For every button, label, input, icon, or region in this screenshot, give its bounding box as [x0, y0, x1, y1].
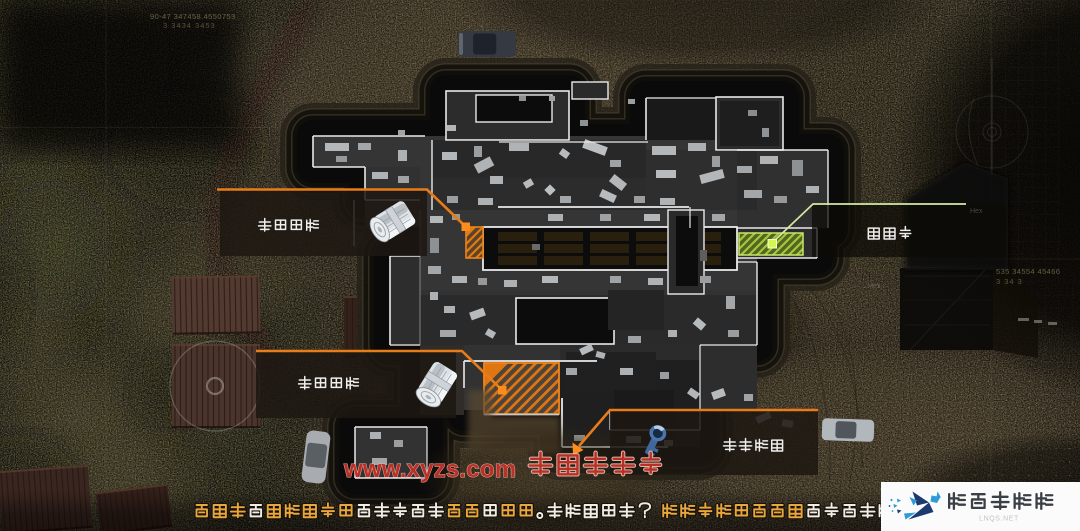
- svg-text:Hex: Hex: [868, 283, 881, 290]
- svg-text:Hex: Hex: [970, 208, 983, 215]
- svg-text:3 34 3: 3 34 3: [996, 277, 1023, 286]
- svg-text:www.xyzs.com: www.xyzs.com: [343, 456, 516, 483]
- svg-text:90-47 347458.4550753: 90-47 347458.4550753: [150, 12, 236, 21]
- svg-text:3 3434 3453: 3 3434 3453: [163, 21, 216, 30]
- svg-text:535 34554 45466: 535 34554 45466: [996, 267, 1060, 276]
- svg-text:LNQS.NET: LNQS.NET: [979, 516, 1019, 523]
